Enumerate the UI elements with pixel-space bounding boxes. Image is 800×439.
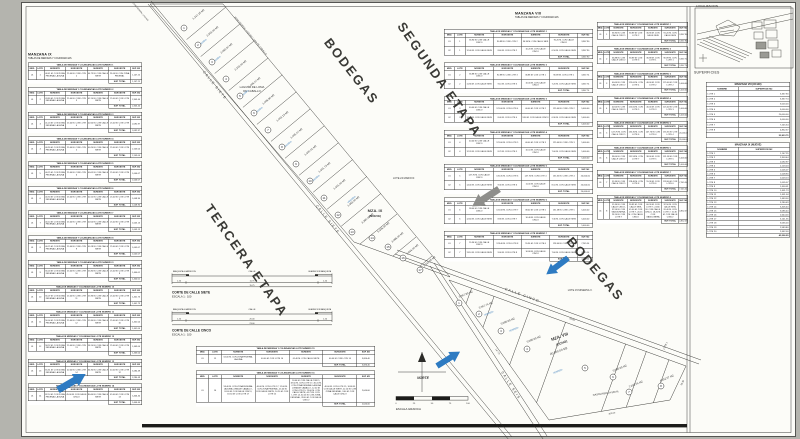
cell: 90.89 M. CON LOTE 3 bbox=[493, 71, 521, 80]
cell: 135.35 M. CON LOTE 4 bbox=[550, 172, 578, 181]
cell: 02 bbox=[444, 215, 454, 224]
medidas-table-grid: MED.LOTENORESTENOROESTESURESTESUROESTESU… bbox=[597, 26, 688, 43]
cell: 36.90 M. CON CALLE SEIS bbox=[521, 37, 549, 46]
cell: 01 bbox=[444, 206, 454, 215]
sup-total-label: SUP. TOTAL bbox=[550, 190, 578, 194]
sup-total-value: 20,000.00 bbox=[578, 190, 593, 194]
cell: 25.00 M. CON LOTE 5 bbox=[109, 194, 131, 203]
sup-total-label: SUP. TOTAL bbox=[550, 156, 578, 160]
cell: 56.00 M. CON ZONA FEDERAL LAGUNA bbox=[44, 268, 66, 277]
cell: 6 bbox=[455, 215, 465, 224]
sup-total-label: SUP. TOTAL bbox=[550, 257, 578, 261]
cell: 12.40 M. CON CALLE SEIS bbox=[465, 46, 493, 55]
cell: 25.00 M. CON LOTE 4 bbox=[66, 120, 88, 129]
sup-total-label: SUP. TOTAL bbox=[109, 277, 131, 281]
cell: 90.89 M. CON LOTE 2 bbox=[627, 30, 644, 39]
cell: 56.07 M. CON ZONA FEDERAL LAGUNA bbox=[44, 293, 66, 302]
sup-cell: 1,401.73 bbox=[130, 293, 141, 302]
medidas-table: TABLA DE MEDIDAS Y COLINDANCIAS LOTE NUM… bbox=[28, 235, 142, 256]
sup-cell: 3,280.49 bbox=[130, 367, 141, 376]
sup-cell: 3,367.74 bbox=[578, 80, 593, 89]
total-value: 43,006.09 bbox=[738, 233, 790, 237]
cell: 25.00 M. CON LOTE 13 bbox=[66, 342, 88, 351]
cell: 01 bbox=[444, 71, 454, 80]
cell: 01 bbox=[444, 172, 454, 181]
cell: 3 bbox=[455, 113, 465, 122]
cell: 8.40 M. CON LOTE 4 bbox=[493, 113, 521, 122]
cell: 147.76 M. CON CALLE CINCO bbox=[610, 129, 627, 138]
medidas-table: TABLA DE MEDIDAS Y COLINDANCIAS LOTE NUM… bbox=[28, 260, 142, 281]
cell: 25.00 M. CON LOTE 9 bbox=[66, 243, 88, 252]
cell: 1 bbox=[455, 37, 465, 46]
cell: 01 bbox=[28, 169, 36, 178]
cell: 36.90 M. CON CALLE CINCO bbox=[610, 30, 627, 39]
cell: 125.00 M. CON LOTE 2 bbox=[550, 104, 578, 113]
cell: 64.90 M. CON CALLE SIETE bbox=[87, 367, 109, 376]
sup-total-label: SUP. TOTAL bbox=[550, 89, 578, 93]
cell: 01 bbox=[28, 219, 36, 228]
sup-total-label: SUP. TOTAL bbox=[661, 138, 678, 142]
cell: 9.30 M. CON LOTE 6 bbox=[493, 181, 521, 190]
cell: 10.10 M. CON CALLE CINCO bbox=[521, 147, 549, 156]
medidas-table-grid: MED.LOTENORESTENOROESTESURESTESUROESTESU… bbox=[196, 350, 375, 367]
medidas-table: TABLA DE MEDIDAS Y COLINDANCIAS LOTE NUM… bbox=[28, 285, 142, 306]
sup-cell: 1,003.13 bbox=[130, 219, 141, 228]
sup-cell: 2,303.44 bbox=[130, 95, 141, 104]
superficie-table: MANZANA IX (NUEVE)NOMBRESUPERFICIE M2LOT… bbox=[706, 142, 790, 237]
manzana-viii-tables-left: TABLA DE MEDIDAS Y COLINDANCIAS LOTE NUM… bbox=[444, 29, 593, 265]
medidas-table-grid: MED.LOTENORESTENOROESTESURESTESUROESTESU… bbox=[28, 116, 142, 133]
medidas-table: TABLA DE MEDIDAS Y COLINDANCIAS LOTE NUM… bbox=[444, 198, 593, 228]
cell: 02 bbox=[444, 46, 454, 55]
medidas-table: TABLA DE MEDIDAS Y COLINDANCIAS LOTE NUM… bbox=[28, 186, 142, 207]
cell: 01 bbox=[444, 104, 454, 113]
cell: 8.60 M. CON LOTE 2 bbox=[493, 46, 521, 55]
sup-cell: 5,000.00 bbox=[679, 79, 688, 88]
cell: 5 bbox=[455, 181, 465, 190]
cell: 125.00 M. CON LOTE 4 bbox=[627, 79, 644, 88]
cell: 40.00 M. CON LOTE 3 bbox=[521, 138, 549, 147]
cell: 01 bbox=[28, 120, 36, 129]
cell: 7.00 M. CON CALLE SEIS bbox=[550, 147, 578, 156]
sup-total-value: 3,280.49 bbox=[130, 376, 141, 380]
cell: 15 bbox=[209, 354, 221, 363]
medidas-table-grid: MED.LOTENORESTENOROESTESURESTESUROESTESU… bbox=[444, 134, 593, 160]
sup-cell: 3,367.90 bbox=[679, 30, 688, 39]
cell: 8 bbox=[36, 243, 44, 252]
sup-total-label: SUP. TOTAL bbox=[661, 113, 678, 117]
cell: 90.89 M. CON LOTE 3 bbox=[627, 55, 644, 64]
cell: 25.00 M. CON LOTE 3 bbox=[109, 145, 131, 154]
cell: 13.10 M. CON CALLE SEIS bbox=[465, 248, 493, 257]
cell: 6 bbox=[36, 194, 44, 203]
sup-total-label: SUP. TOTAL bbox=[109, 228, 131, 232]
cell: 80.60 M. CON CALLE SIETE bbox=[87, 392, 109, 401]
medidas-table-grid: MED.LOTENORESTENOROESTESURESTESUROESTESU… bbox=[597, 174, 688, 191]
total-value: 53,833.75 bbox=[738, 132, 790, 137]
medidas-table-grid: MED.LOTENORESTENOROESTESURESTESUROESTESU… bbox=[597, 100, 688, 117]
cell: 10.80 M. CON CALLE CINCO bbox=[521, 248, 549, 257]
sup-total-value: 3,367.90 bbox=[679, 39, 688, 43]
sup-cell: 5,000.00 bbox=[578, 104, 593, 113]
cell: 45.00 M. CON CALLE CINCO bbox=[66, 392, 88, 401]
cell: 2 bbox=[455, 71, 465, 80]
sup-total-value: 1,005.07 bbox=[130, 252, 141, 256]
medidas-table: TABLA DE MEDIDAS Y COLINDANCIAS LOTE NUM… bbox=[28, 161, 142, 182]
sup-total-label: SUP. TOTAL bbox=[109, 203, 131, 207]
cell: 12.00 M. CON CALLE SEIS bbox=[465, 113, 493, 122]
cell: 01 bbox=[196, 354, 208, 363]
cell: 7 bbox=[36, 219, 44, 228]
cell: 135.35 M. CON LOTE 6 bbox=[493, 172, 521, 181]
cell: 38.00 M. CON CALLE CINCO bbox=[465, 206, 493, 215]
sup-total-value: 4,852.57 bbox=[679, 219, 688, 223]
sup-cell: 20,000.00 bbox=[578, 181, 593, 190]
sup-total-value: 1,147.25 bbox=[130, 80, 141, 84]
medidas-table-grid: MED.LOTENORESTENOROESTESURESTESUROESTESU… bbox=[444, 201, 593, 227]
medidas-table: TABLA DE MEDIDAS Y COLINDANCIAS LOTE NUM… bbox=[444, 63, 593, 93]
cell: 55.36 M. CON CALLE CINCO bbox=[610, 178, 627, 187]
cell: 128.40 M. CON LOTE 8 bbox=[493, 239, 521, 248]
cell: 90.89 M. CON LOTE 2 bbox=[493, 37, 521, 46]
sup-cell: 3,367.74 bbox=[578, 71, 593, 80]
superficies-label: SUPERFICIES bbox=[694, 71, 774, 75]
cell: 5 bbox=[36, 169, 44, 178]
cell: 55.80 M. CON CALLE SIETE bbox=[87, 268, 109, 277]
medidas-table-grid: MED.LOTENORESTENOROESTESURESTESUROESTESU… bbox=[28, 338, 142, 355]
sup-total-value: 1,003.13 bbox=[130, 228, 141, 232]
cell: 02 bbox=[444, 113, 454, 122]
sup-cell: 7,245.54 bbox=[679, 178, 688, 187]
cell: 01 bbox=[444, 138, 454, 147]
sup-cell: 5,000.00 bbox=[578, 215, 593, 224]
cell: 36.88 M. CON LOTE 1 bbox=[521, 71, 549, 80]
total-row: 53,833.75 bbox=[706, 132, 790, 137]
sup-cell: 3,086.40 bbox=[357, 354, 375, 363]
cell: 01 bbox=[28, 392, 36, 401]
sup-cell: 1,463.00 bbox=[130, 342, 141, 351]
sup-cell: 20,000.00 bbox=[679, 129, 688, 138]
cell: 02 bbox=[444, 248, 454, 257]
sup-cell: 1,008.90 bbox=[130, 194, 141, 203]
cell: 36.88 M. CON CALLE CINCO bbox=[610, 55, 627, 64]
medidas-table: TABLA DE MEDIDAS Y COLINDANCIAS LOTE NUM… bbox=[28, 63, 142, 84]
medidas-table-grid: MED.LOTENORESTENOROESTESURESTESUROESTESU… bbox=[28, 190, 142, 207]
sup-total-value: 1,401.73 bbox=[130, 302, 141, 306]
medidas-table: TABLA DE MEDIDAS Y COLINDANCIAS LOTE NUM… bbox=[28, 211, 142, 232]
cell: 25.00 M. CON LOTE 2 bbox=[109, 120, 131, 129]
cell: 9 bbox=[36, 268, 44, 277]
sup-cell: 5,000.00 bbox=[578, 206, 593, 215]
medidas-table-grid: MED.LOTENORESTENOROESTESURESTESUROESTESU… bbox=[597, 149, 688, 166]
medidas-table: TABLA DE MEDIDAS Y COLINDANCIAS LOTE NUM… bbox=[196, 371, 375, 407]
sup-total-value: 5,000.00 bbox=[578, 224, 593, 228]
sup-cell: 4,852.57 bbox=[679, 203, 688, 219]
cell: 58.40 M. CON ZONA FEDERAL LAGUNA LOMA DE… bbox=[221, 379, 255, 403]
sup-cell: 5,000.00 bbox=[578, 147, 593, 156]
cell: 25.00 M. CON LOTE 9 bbox=[109, 293, 131, 302]
cell: 40.00 M. CON CALLE CINCO bbox=[465, 104, 493, 113]
sup-total-value: 20,000.00 bbox=[679, 138, 688, 142]
cell: 7.30 M. CON CALLE SEIS bbox=[550, 215, 578, 224]
cell: 02 bbox=[444, 80, 454, 89]
sup-total-label: SUP. TOTAL bbox=[661, 64, 678, 68]
plan-sheet-page: MANZANA IX TABLAS DE MEDIDAS Y COLINDANC… bbox=[0, 0, 800, 439]
medidas-table: TABLA DE MEDIDAS Y COLINDANCIAS LOTE NUM… bbox=[597, 195, 688, 223]
cell: 14.00 M. CON CALLE SEIS bbox=[465, 181, 493, 190]
cell: 147.76 M. CON LOTE 4 bbox=[521, 172, 549, 181]
cell: 40.12 M. CON CALLE SIETE bbox=[87, 194, 109, 203]
cell: 25.00 M. CON LOTE 7 bbox=[109, 243, 131, 252]
sup-total-label: SUP. TOTAL bbox=[323, 363, 357, 367]
manzana-viii-tables-right: TABLA DE MEDIDAS Y COLINDANCIAS LOTE NUM… bbox=[597, 22, 688, 227]
cell: 125.00 M. CON LOTE 5 bbox=[493, 138, 521, 147]
cell: 25.00 M. CON LOTE 11 bbox=[109, 342, 131, 351]
bottom-lot-tables: TABLA DE MEDIDAS Y COLINDANCIAS LOTE NUM… bbox=[196, 346, 375, 410]
cell: 147.76 M. CON LOTE 4 bbox=[644, 129, 661, 138]
sup-cell: 3,367.90 bbox=[578, 46, 593, 55]
cell: 02 bbox=[444, 181, 454, 190]
cell: 91.20 M. CON CALLE CINCO bbox=[550, 37, 578, 46]
cell: 25.00 M. CON LOTE 6 bbox=[66, 169, 88, 178]
cell: 24.00 M. CON CALLE CINCO, 18.50 M. CON L… bbox=[289, 379, 323, 403]
cell: 9.10 M. CON LOTE 3 bbox=[493, 80, 521, 89]
cell: 43.80 M. CON ZONA FEDERAL LAGUNA bbox=[44, 95, 66, 104]
medidas-table: TABLA DE MEDIDAS Y COLINDANCIAS LOTE NUM… bbox=[597, 146, 688, 167]
sup-total-value: 1,008.90 bbox=[130, 203, 141, 207]
cell: 135.35 M. CON LOTE 6 bbox=[627, 129, 644, 138]
sup-total-value: 5,000.00 bbox=[679, 163, 688, 167]
sup-total-label: SUP. TOTAL bbox=[661, 219, 678, 223]
cell: 1 bbox=[455, 46, 465, 55]
sup-total-value: 3,086.40 bbox=[357, 363, 375, 367]
cell: 36.88 M. CON CALLE CINCO bbox=[465, 71, 493, 80]
cell: 25.00 M. CON LOTE 5 bbox=[66, 145, 88, 154]
cell: 61.40 M. CON CALLE SIETE bbox=[289, 354, 323, 363]
medidas-table: TABLA DE MEDIDAS Y COLINDANCIAS LOTE NUM… bbox=[28, 137, 142, 158]
cell: 40.60 M. CON CALLE SIETE bbox=[87, 120, 109, 129]
cell: 10.00 M. CON CALLE CINCO bbox=[521, 80, 549, 89]
sup-cell: 1,005.07 bbox=[130, 243, 141, 252]
cell: 40.00 M. CON LOTE 15, 16.80 M. CON CALLE… bbox=[323, 379, 357, 403]
cell: 10 bbox=[36, 293, 44, 302]
cell: 25.00 M. CON LOTE 10 bbox=[109, 318, 131, 327]
sup-total-value: 7,245.54 bbox=[578, 257, 593, 261]
medidas-table: TABLA DE MEDIDAS Y COLINDANCIAS LOTE NUM… bbox=[444, 231, 593, 261]
medidas-table-grid: MED.LOTENORESTENOROESTESURESTESUROESTESU… bbox=[444, 235, 593, 261]
medidas-table: TABLA DE MEDIDAS Y COLINDANCIAS LOTE NUM… bbox=[196, 346, 375, 367]
cell: 46.41 M. CON ZONA FEDERAL LAGUNA bbox=[44, 71, 66, 80]
cell: 02 bbox=[444, 147, 454, 156]
medidas-table: TABLA DE MEDIDAS Y COLINDANCIAS LOTE NUM… bbox=[597, 96, 688, 117]
medidas-table: TABLA DE MEDIDAS Y COLINDANCIAS LOTE NUM… bbox=[28, 87, 142, 108]
sup-total-value: 2,644.00 bbox=[357, 402, 375, 406]
medidas-table: TABLA DE MEDIDAS Y COLINDANCIAS LOTE NUM… bbox=[28, 310, 142, 331]
cell: 128.40 M. CON LOTE 6 bbox=[661, 178, 678, 187]
cell: 01 bbox=[28, 194, 36, 203]
cell: 131.58 M. CON LOTE 5 bbox=[550, 206, 578, 215]
sup-total-value: 5,000.00 bbox=[578, 122, 593, 126]
sup-total-label: SUP. TOTAL bbox=[661, 163, 678, 167]
cell: 01 bbox=[28, 95, 36, 104]
cell: 125.00 M. CON LOTE 4 bbox=[493, 104, 521, 113]
medidas-table-grid: MED.LOTENORESTENOROESTESURESTESUROESTESU… bbox=[444, 67, 593, 93]
sup-total-value: 1,006.07 bbox=[130, 178, 141, 182]
cell: 40.00 M. CON CALLE CINCO bbox=[610, 79, 627, 88]
medidas-table-grid: MED.LOTENORESTENOROESTESURESTESUROESTESU… bbox=[28, 387, 142, 404]
cell: 40.00 M. CON LOTE 14 bbox=[323, 354, 357, 363]
cell: 7.60 M. CON CALLE SEIS bbox=[550, 248, 578, 257]
sup-total-value: 2,092.97 bbox=[130, 129, 141, 133]
medidas-table-grid: MED.LOTENORESTENOROESTESURESTESUROESTESU… bbox=[28, 165, 142, 182]
cell: 2 bbox=[36, 95, 44, 104]
cell: 6.50 M. CON CALLE SEIS bbox=[550, 46, 578, 55]
cell: 11 bbox=[36, 318, 44, 327]
cell: 42.10 M. CON CALLE SIETE bbox=[87, 95, 109, 104]
cell: 40.00 M. CON LOTE 2 bbox=[644, 79, 661, 88]
sup-total-value: 3,367.74 bbox=[578, 89, 593, 93]
medidas-table-grid: MED.LOTENORESTENOROESTESURESTESUROESTESU… bbox=[597, 199, 688, 224]
cell: 36.90 M. CON CALLE SEIS bbox=[644, 30, 661, 39]
cell: 62.00 M. CON ZONA FEDERAL LAGUNA bbox=[221, 354, 255, 363]
sup-cell: 1,401.04 bbox=[130, 318, 141, 327]
cell: 8.70 M. CON LOTE 5 bbox=[493, 147, 521, 156]
medidas-table: TABLA DE MEDIDAS Y COLINDANCIAS LOTE NUM… bbox=[597, 121, 688, 142]
sup-total-label: SUP. TOTAL bbox=[550, 55, 578, 59]
cell: 40.10 M. CON ZONA FEDERAL LAGUNA bbox=[44, 219, 66, 228]
medidas-table-grid: MED.LOTENORESTENOROESTESURESTESUROESTESU… bbox=[444, 168, 593, 194]
cell: 40.00 M. CON LOTE 3 bbox=[644, 104, 661, 113]
cell: 7 bbox=[455, 248, 465, 257]
cell: 44.73 M. CON CALLE SIETE bbox=[87, 71, 109, 80]
medidas-table-grid: MED.LOTENORESTENOROESTESURESTESUROESTESU… bbox=[28, 140, 142, 157]
cell: 40.00 M. CON CALLE CINCO bbox=[465, 138, 493, 147]
cell: 25.00 M. CON LOTE 3 bbox=[66, 95, 88, 104]
sup-total-value: 2,103.04 bbox=[130, 154, 141, 158]
cell: 16 bbox=[209, 379, 221, 403]
medidas-table: TABLA DE MEDIDAS Y COLINDANCIAS LOTE NUM… bbox=[28, 112, 142, 133]
cell: 25.00 M. CON LOTE 11 bbox=[66, 293, 88, 302]
cell: 131.58 M. CON LOTE 5 bbox=[661, 154, 678, 163]
cell: 55.90 M. CON CALLE SIETE bbox=[87, 318, 109, 327]
medidas-table: TABLA DE MEDIDAS Y COLINDANCIAS LOTE NUM… bbox=[444, 96, 593, 126]
cell: 10.20 M. CON CALLE CINCO bbox=[521, 46, 549, 55]
cell: 12.60 M. CON CALLE SEIS bbox=[465, 215, 493, 224]
cell: 01 bbox=[28, 293, 36, 302]
sup-total-label: SUP. TOTAL bbox=[109, 302, 131, 306]
superficie-grid: NOMBRESUPERFICIE M2LOTE 13,367.90LOTE 23… bbox=[706, 87, 790, 138]
cell: 82.14 M. CON ZONA FEDERAL LAGUNA bbox=[44, 392, 66, 401]
cell: 40.30 M. CON ZONA FEDERAL LAGUNA bbox=[44, 194, 66, 203]
cell: 25.00 M. CON ZONA FEDERAL bbox=[109, 71, 131, 80]
sup-total-value: 3,367.90 bbox=[578, 55, 593, 59]
sup-total-label: SUP. TOTAL bbox=[109, 129, 131, 133]
manzana-viii-subtitle: TABLAS DE MEDIDAS Y COLINDANCIAS bbox=[515, 16, 675, 19]
cell: 40.00 M. CON LOTE 17, 12.00 M. CON ZONA … bbox=[255, 379, 289, 403]
medidas-table-grid: MED.LOTENORESTENOROESTESURESTESUROESTESU… bbox=[444, 33, 593, 59]
sup-cell: 5,000.00 bbox=[679, 154, 688, 163]
cell: 1 bbox=[36, 71, 44, 80]
sup-total-label: SUP. TOTAL bbox=[109, 178, 131, 182]
medidas-table: TABLA DE MEDIDAS Y COLINDANCIAS LOTE NUM… bbox=[444, 130, 593, 160]
cell: 40.25 M. CON ZONA FEDERAL LAGUNA bbox=[44, 169, 66, 178]
medidas-table-grid: MED.LOTENORESTENOROESTESURESTESUROESTESU… bbox=[444, 100, 593, 126]
sup-total-value: 2,303.44 bbox=[130, 104, 141, 108]
medidas-table-grid: MED.LOTENORESTENOROESTESURESTESUROESTESU… bbox=[28, 66, 142, 83]
cell: 01 bbox=[444, 239, 454, 248]
sup-total-value: 5,000.00 bbox=[679, 113, 688, 117]
manzana-viii-title: MANZANA VIII bbox=[515, 12, 675, 16]
cell: 12.20 M. CON CALLE SEIS bbox=[465, 147, 493, 156]
sup-cell: 1,006.07 bbox=[130, 169, 141, 178]
cell: 32.56 M. CON CALLE SEIS, 26.40 M. CON LO… bbox=[661, 203, 678, 219]
sup-total-value: 5,000.00 bbox=[679, 88, 688, 92]
sup-total-label: SUP. TOTAL bbox=[109, 104, 131, 108]
cell: 55.36 M. CON LOTE 6 bbox=[521, 239, 549, 248]
medidas-table: TABLA DE MEDIDAS Y COLINDANCIAS LOTE NUM… bbox=[597, 22, 688, 43]
cell: 7.20 M. CON CALLE SEIS bbox=[550, 80, 578, 89]
cell: 131.58 M. CON LOTE 7 bbox=[493, 206, 521, 215]
sup-total-value: 1,463.00 bbox=[130, 351, 141, 355]
cell: 01 bbox=[28, 71, 36, 80]
sup-total-label: SUP. TOTAL bbox=[109, 401, 131, 405]
sup-cell: 1,147.25 bbox=[130, 71, 141, 80]
cell: 25.00 M. CON LOTE 10 bbox=[66, 268, 88, 277]
medidas-table-grid: MED.LOTENORESTENOROESTESURESTESUROESTESU… bbox=[28, 239, 142, 256]
cell: 125.00 M. CON LOTE 5 bbox=[627, 104, 644, 113]
medidas-table-grid: MED.LOTENORESTENOROESTESURESTESUROESTESU… bbox=[28, 91, 142, 108]
medidas-table-grid: MED.LOTENORESTENOROESTESURESTESUROESTESU… bbox=[28, 264, 142, 281]
cell: 11.40 M. CON CALLE CINCO bbox=[521, 181, 549, 190]
cell: 8.10 M. CON CALLE SEIS bbox=[550, 181, 578, 190]
sup-cell: 2,092.97 bbox=[130, 120, 141, 129]
cell: 128.40 M. CON LOTE 6 bbox=[550, 239, 578, 248]
cell: 01 bbox=[28, 342, 36, 351]
manzana-ix-tables: TABLA DE MEDIDAS Y COLINDANCIAS LOTE NUM… bbox=[28, 63, 142, 405]
medidas-table-grid: MED.LOTENORESTENOROESTESURESTESUROESTESU… bbox=[597, 125, 688, 142]
cell: 40.05 M. CON CALLE SIETE bbox=[87, 169, 109, 178]
superficies-label-wrap: SUPERFICIES bbox=[694, 71, 774, 75]
medidas-table: TABLA DE MEDIDAS Y COLINDANCIAS LOTE NUM… bbox=[444, 29, 593, 59]
cell: 60.30 M. CON LOTE 7, 24.80 M. CON CALLE … bbox=[644, 203, 661, 219]
cell: 65.61 M. CON ZONA FEDERAL LAGUNA bbox=[44, 367, 66, 376]
cell: 40.18 M. CON CALLE SIETE bbox=[87, 243, 109, 252]
sup-cell: 5,000.00 bbox=[578, 113, 593, 122]
sup-total-value: 5,406.40 bbox=[130, 401, 141, 405]
manzana-ix-subtitle: TABLAS DE MEDIDAS Y COLINDANCIAS bbox=[28, 57, 142, 60]
cell: 147.76 M. CON CALLE CINCO bbox=[465, 172, 493, 181]
cell: 25.00 M. CON LOTE 12 bbox=[66, 318, 88, 327]
medidas-table-grid: MED.LOTENORESTENOROESTESURESTESUROESTESU… bbox=[28, 289, 142, 306]
cell: 25.00 M. CON LOTE 7 bbox=[66, 194, 88, 203]
cell: 01 bbox=[28, 243, 36, 252]
cell: 01 bbox=[28, 145, 36, 154]
superficies-tables: MANZANA VIII (OCHO)NOMBRESUPERFICIE M2LO… bbox=[706, 82, 790, 242]
cell: 8.90 M. CON LOTE 7 bbox=[493, 215, 521, 224]
sup-cell: 7,245.54 bbox=[578, 248, 593, 257]
cell: 25.00 M. CON LOTE 8 bbox=[66, 219, 88, 228]
cell: 55.36 M. CON CALLE CINCO, 32.56 M. CON G… bbox=[610, 203, 627, 219]
manzana-viii-heading: MANZANA VIII TABLAS DE MEDIDAS Y COLINDA… bbox=[515, 12, 675, 22]
cell: 40.00 M. CON LOTE 16 bbox=[255, 354, 289, 363]
cell: 36.88 M. CON LOTE 1 bbox=[644, 55, 661, 64]
sup-total-value: 1,401.04 bbox=[130, 327, 141, 331]
medidas-table: TABLA DE MEDIDAS Y COLINDANCIAS LOTE NUM… bbox=[597, 170, 688, 191]
cell: 55.96 M. CON CALLE SIETE bbox=[87, 293, 109, 302]
cell: 90.89 M. CON CALLE SEIS, 45.00 M. CON LO… bbox=[627, 203, 644, 219]
sup-cell: 1,400.01 bbox=[130, 268, 141, 277]
cell: 14 bbox=[36, 392, 44, 401]
